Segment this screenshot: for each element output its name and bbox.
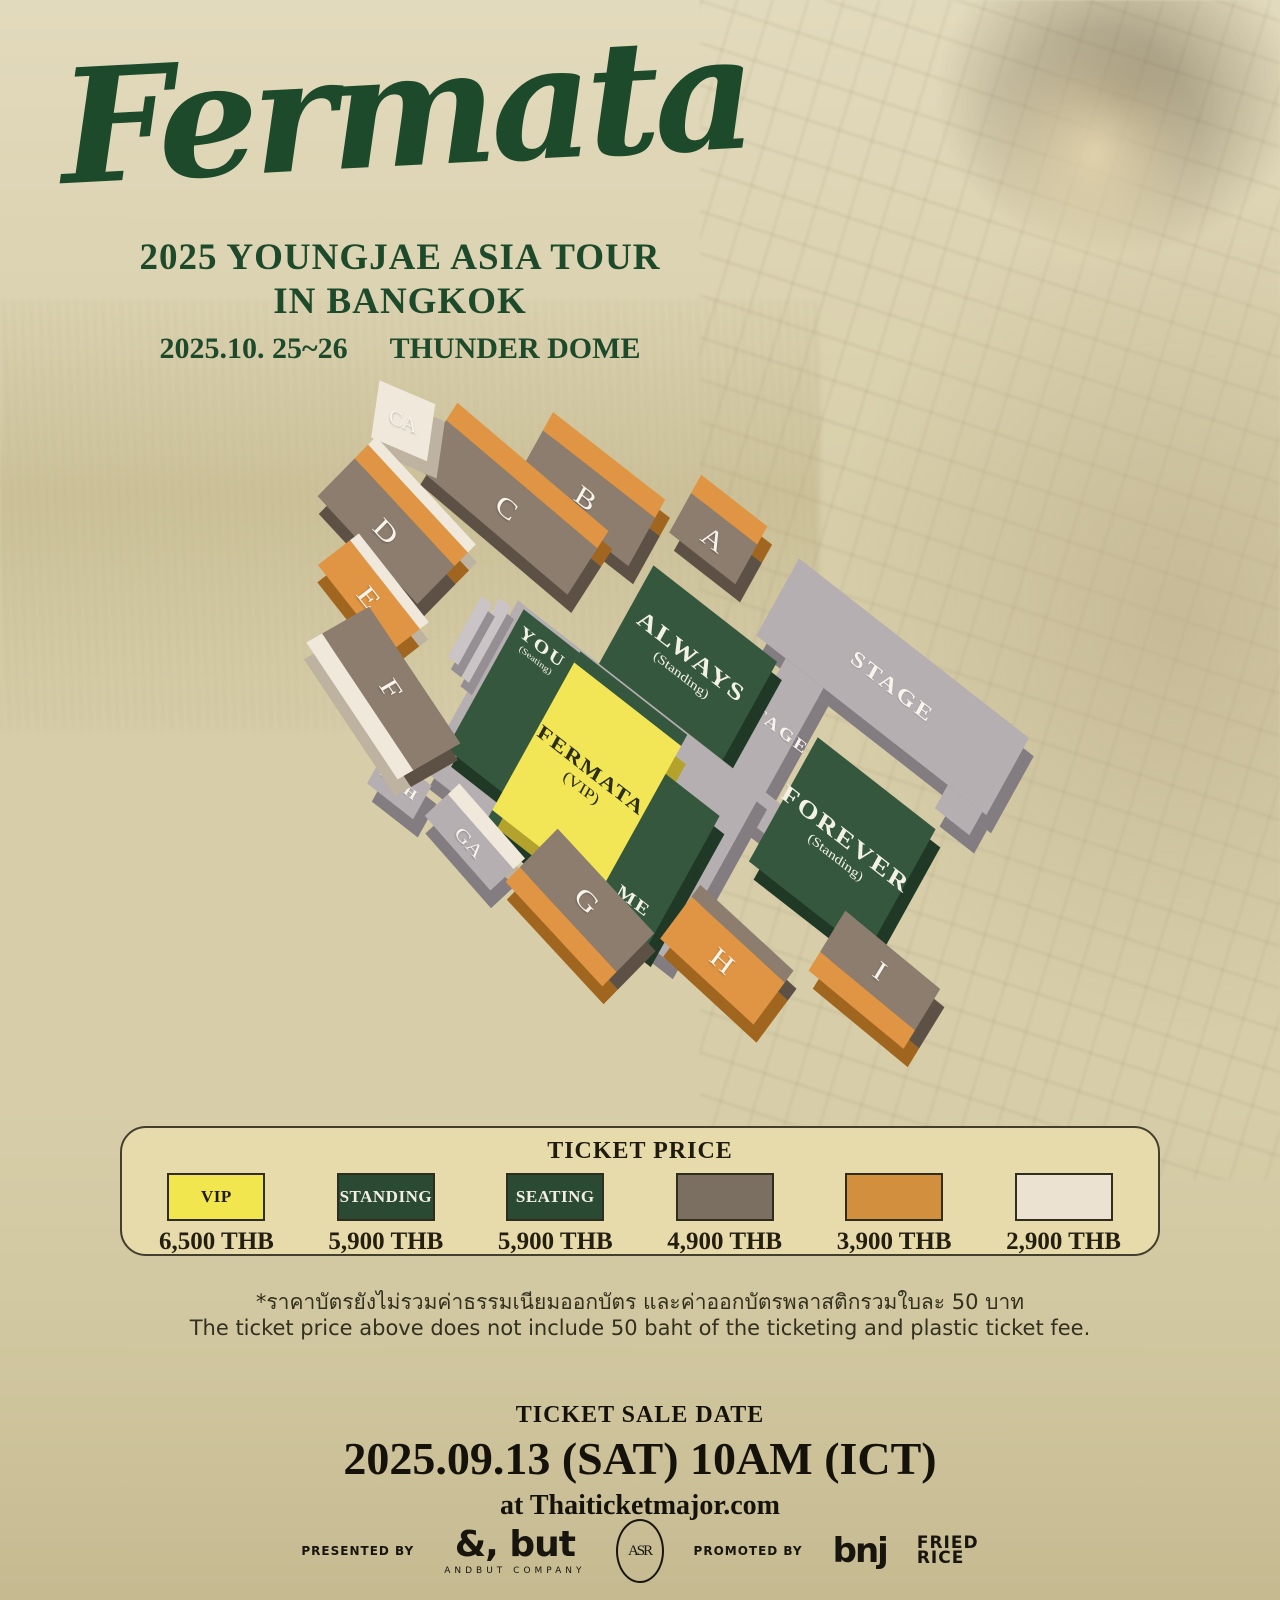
vip-price: 6,500 THB (159, 1228, 274, 1256)
brown-color-swatch (676, 1173, 774, 1221)
promoted-by-label: PROMOTED BY (694, 1544, 803, 1558)
page-title: Fermata (56, 0, 765, 221)
brown-tier-price: 4,900 THB (667, 1228, 782, 1256)
tier-standing: STANDING 5,900 THB (311, 1173, 461, 1256)
tier-cream: 2,900 THB (989, 1173, 1139, 1256)
tier-vip: VIP 6,500 THB (141, 1173, 291, 1256)
event-date-venue: 2025.10. 25~26 THUNDER DOME (80, 332, 720, 366)
seating-color-swatch: SEATING (506, 1173, 604, 1221)
section-f-label: F (373, 673, 410, 704)
fried-rice-line2: RICE (917, 1548, 965, 1568)
presented-by-label: PRESENTED BY (301, 1544, 414, 1558)
stage-label: STAGE (847, 645, 939, 729)
tier-brown: 4,900 THB (650, 1173, 800, 1256)
cream-tier-price: 2,900 THB (1006, 1228, 1121, 1256)
orange-tier-price: 3,900 THB (837, 1228, 952, 1256)
zone-forever-name: FOREVER (777, 778, 915, 899)
bnj-logo: bnj (833, 1531, 887, 1571)
seating-price: 5,900 THB (498, 1228, 613, 1256)
tier-orange: 3,900 THB (819, 1173, 969, 1256)
vip-color-swatch: VIP (167, 1173, 265, 1221)
zone-always-name: ALWAYS (633, 604, 751, 709)
sale-date-heading: TICKET SALE DATE (0, 1402, 1280, 1429)
standing-color-swatch: STANDING (337, 1173, 435, 1221)
section-i-label: I (868, 954, 893, 987)
section-d-label: D (367, 511, 405, 550)
section-h-label: H (704, 940, 740, 981)
ticket-price-panel: TICKET PRICE VIP 6,500 THB STANDING 5,90… (120, 1126, 1160, 1256)
ticket-price-heading: TICKET PRICE (547, 1138, 733, 1165)
sale-datetime: 2025.09.13 (SAT) 10AM (ICT) (0, 1432, 1280, 1485)
orange-color-swatch (845, 1173, 943, 1221)
fried-rice-logo: FRIED RICE (917, 1536, 979, 1567)
fee-note-english: The ticket price above does not include … (0, 1316, 1280, 1340)
fee-note-thai: *ราคาบัตรยังไม่รวมค่าธรรมเนียมออกบัตร แล… (0, 1286, 1280, 1319)
section-g-label: G (568, 881, 606, 920)
tour-title-line2: IN BANGKOK (80, 280, 720, 323)
section-ca-label: CA (387, 403, 418, 438)
cream-color-swatch (1015, 1173, 1113, 1221)
ticket-tier-row: VIP 6,500 THB STANDING 5,900 THB SEATING… (122, 1173, 1158, 1256)
event-date: 2025.10. 25~26 (160, 332, 348, 366)
asr-monogram-icon: ASR (616, 1519, 664, 1583)
footer-logo-row: PRESENTED BY &, but ANDBUT COMPANY ASR P… (0, 1516, 1280, 1586)
seatmap-section-f: F (306, 607, 460, 780)
standing-price: 5,900 THB (328, 1228, 443, 1256)
andbut-logotype: &, but (455, 1527, 575, 1563)
section-a-label: A (696, 518, 730, 560)
section-c-label: C (490, 487, 524, 527)
tour-title-line1: 2025 YOUNGJAE ASIA TOUR (80, 236, 720, 279)
andbut-company-label: ANDBUT COMPANY (444, 1566, 585, 1576)
andbut-company-logo: &, but ANDBUT COMPANY (444, 1527, 585, 1576)
tier-seating: SEATING 5,900 THB (480, 1173, 630, 1256)
